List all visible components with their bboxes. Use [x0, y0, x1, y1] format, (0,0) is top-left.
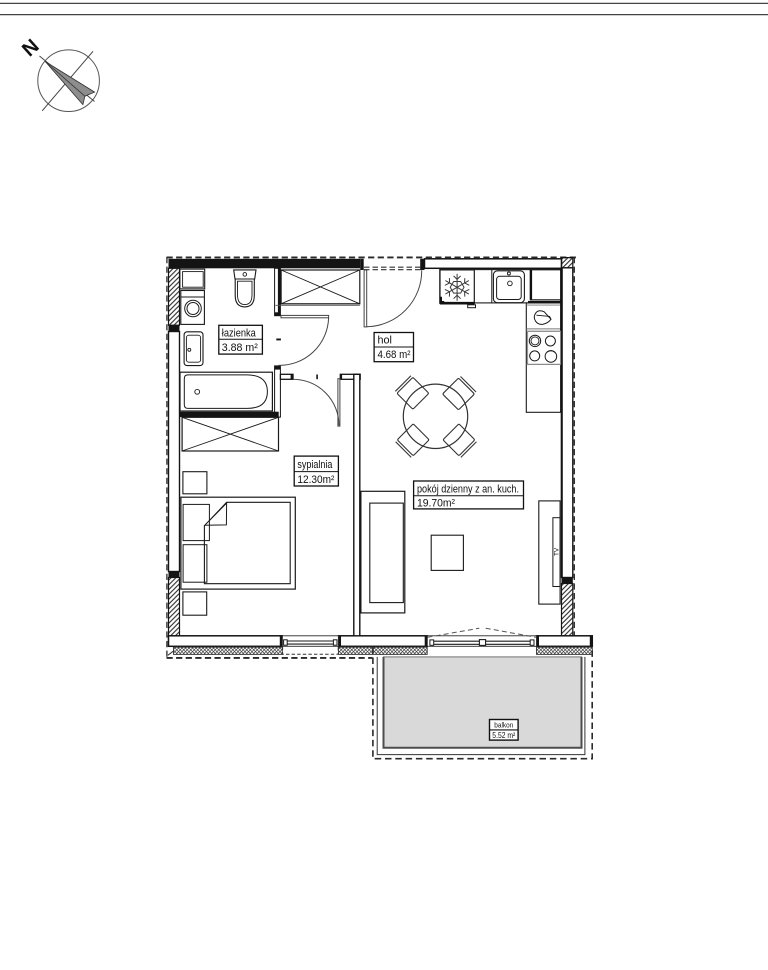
svg-text:balkon: balkon [494, 721, 513, 730]
svg-text:TV: TV [554, 547, 561, 556]
svg-text:łazienka: łazienka [222, 327, 256, 339]
svg-text:pokój dzienny z an. kuch.: pokój dzienny z an. kuch. [417, 484, 519, 496]
svg-text:3.88 m²: 3.88 m² [222, 342, 258, 354]
svg-text:sypialnia: sypialnia [297, 459, 332, 471]
svg-text:12.30m²: 12.30m² [297, 474, 334, 486]
svg-text:19.70m²: 19.70m² [417, 498, 455, 510]
svg-text:hol: hol [378, 335, 392, 347]
svg-text:5.52 m²: 5.52 m² [492, 731, 515, 740]
svg-text:N: N [18, 35, 43, 61]
svg-text:4.68 m²: 4.68 m² [378, 349, 411, 361]
